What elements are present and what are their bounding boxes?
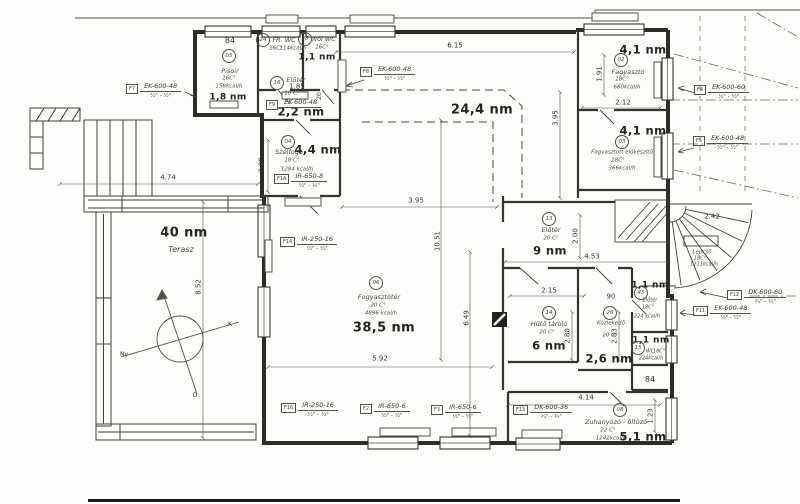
radiator-tag: F12 [727, 290, 742, 300]
dimension-lines [60, 52, 668, 438]
room-code-badge: 16 [270, 76, 284, 90]
radiator-size: ¾" - ¾" [755, 298, 776, 305]
radiator-label-f16: F16 IR-250-16½" - ½" [281, 401, 338, 418]
room-code-badge: 26 [603, 306, 617, 320]
radiator-label-f14: F14 IR-250-16½" - ½" [280, 235, 337, 252]
room-name: Előtér [643, 299, 658, 304]
radiator-label-f3: F3 IR-650-6½" - ½" [431, 403, 481, 420]
dim-4-14: 4.14 [578, 395, 594, 402]
dim-10-51: 10.51 [435, 231, 442, 251]
radiator-model: IR-650-6 [445, 403, 481, 413]
room-heat: 224 kcal/h [634, 315, 660, 320]
radiator-model: DK-600-36 [530, 403, 572, 413]
room-code-badge: 14 [542, 306, 556, 320]
room-heat: 4896 kcal/h [365, 311, 397, 317]
room-temp: 18 C° [284, 158, 299, 164]
radiator-size: ½" - ½" [718, 93, 739, 100]
radiator-model: DK-600-60 [744, 288, 786, 298]
dim-4-53: 4.53 [584, 254, 600, 261]
axis-lines [700, 16, 745, 194]
radiator-size: ½" - ¾" [299, 182, 320, 189]
radiator-model: EK-600-48 [710, 304, 751, 314]
radiator-label-f12: F12 DK-600-60¾" - ¾" [727, 288, 786, 305]
room-area: 9 nm [533, 245, 567, 257]
dim-6-49: 6.49 [464, 310, 471, 326]
dim-1-91: 1.91 [597, 66, 604, 82]
scan-edge-artifact [88, 499, 680, 502]
room-temp: 20 C° [543, 236, 558, 242]
radiator-label-f9: F9 EK-600-48 [266, 98, 321, 110]
room-area: 5,1 nm [620, 431, 667, 443]
radiator-tag: F5 [693, 136, 705, 146]
radiator-tag: F13 [513, 405, 528, 415]
compass-rose [121, 290, 239, 394]
room-name: Fagyasztó [611, 69, 644, 76]
dim-2-00-b: 2.00 [573, 228, 580, 244]
radiator-size: ¾" - ¾" [541, 413, 562, 420]
room-heat: 114kcal/h [280, 46, 307, 52]
radiator-tag: F4 [694, 85, 706, 95]
room-area: 38,5 nm [353, 322, 415, 335]
room-code-badge: 06 [369, 276, 383, 290]
radiator-size: ½" - ½" [452, 413, 473, 420]
floor-plan: 84 05 Pisoir 16C° 158kcal/h 1,8 nm 24 FR… [0, 0, 800, 504]
room-name: Szélfogó [275, 149, 303, 156]
room-temp: 20 C° [539, 330, 554, 336]
radiator-model: IR-650-6 [374, 402, 410, 412]
radiator-tag: F8 [360, 67, 372, 77]
radiator-model: EK-600-60 [708, 83, 749, 93]
roof-lines [75, 10, 800, 18]
room-area: 6 nm [532, 340, 566, 352]
radiator-size: ½" - ½" [150, 92, 171, 99]
dim-4-74: 4.74 [160, 175, 176, 182]
room-code-badge: 28 [298, 32, 312, 46]
dim-8-52: 8.52 [196, 279, 203, 295]
room-area: 1,8 nm [209, 94, 246, 103]
room-code-badge: 03 [615, 135, 629, 149]
stair-top-left [30, 108, 152, 196]
dim-1-85: 1.85 [289, 84, 305, 91]
dim-2-42: 2.42 [704, 214, 720, 221]
room-name: Női WC [312, 36, 336, 43]
radiator-model: EK-600-48 [140, 82, 181, 92]
radiator-label-f8: F8 EK-600-48½" - ½" [360, 65, 415, 82]
radiator-model: EK-600-48 [374, 65, 415, 75]
room-number: 84 [225, 37, 235, 45]
room-heat: 1211kcal/h [690, 263, 718, 268]
room-area: 4,1 nm [620, 125, 667, 137]
radiator-tag: F16 [281, 403, 296, 413]
compass-east-label: K [228, 322, 232, 328]
radiator-tag: F1A [274, 174, 289, 184]
dim-2-12: 2.12 [615, 100, 631, 107]
dim-2-15: 2.15 [541, 288, 557, 295]
radiator-tag: F3 [431, 405, 443, 415]
compass-south-label: D [193, 393, 198, 399]
radiator-tag: F11 [693, 306, 708, 316]
room-code-badge: 13 [542, 212, 556, 226]
room-code-badge: 05 [222, 49, 236, 63]
radiator-label-f7: F7 EK-600-48½" - ½" [126, 82, 181, 99]
dim-2-00-a: 2.00 [259, 157, 266, 173]
dim-90: 90 [607, 294, 616, 301]
room-temp: 16C° [315, 45, 329, 51]
room-temp: 18C° [642, 306, 654, 311]
radiator-label-f2: F2 IR-650-6½" - ½" [360, 402, 410, 419]
radiator-label-f4: F4 EK-600-60½" - ½" [694, 83, 749, 100]
room-code-badge: 24 [256, 33, 270, 47]
compass-west-label: Ny [120, 352, 128, 358]
radiator-model: IR-250-16 [298, 401, 338, 411]
room-heat: 660kcal/h [614, 85, 641, 91]
radiator-label-f1a: F1A IR-650-8½" - ¾" [274, 172, 327, 189]
room-code-badge: 15 [631, 341, 645, 355]
room-name: Fogyasztótér [358, 294, 400, 301]
room-code-badge: 08 [613, 403, 627, 417]
radiator-size: ½" - ½" [307, 245, 328, 252]
radiator-model: EK-600-48 [707, 134, 748, 144]
spiral-stair [615, 200, 752, 288]
room-name: Hűtő tároló [531, 321, 568, 328]
dim-1-23: 1.23 [648, 408, 655, 424]
room-name: FR. WC [272, 37, 295, 44]
room-temp: 18 C° [284, 91, 299, 97]
room-name: Közlekedő [597, 321, 625, 327]
radiator-size: ½" - ½" [381, 412, 402, 419]
dim-3-95-right: 3.95 [553, 110, 560, 126]
dim-2-83: 2.83 [612, 328, 619, 344]
room-area: 2,6 nm [586, 353, 633, 365]
room-code-badge: 02 [614, 53, 628, 67]
room-area: 1,1 nm [298, 54, 335, 63]
room-temp: 20 C° [370, 303, 385, 309]
radiator-tag: F9 [266, 100, 278, 110]
radiator-model: EK-600-48 [280, 98, 321, 108]
dim-3-95-mid: 3.95 [408, 198, 424, 205]
room-name: Fagyasztott előkészítő [591, 150, 653, 156]
radiator-tag: F2 [360, 404, 372, 414]
radiator-size: ½" - ½" [384, 75, 405, 82]
radiator-size: ½" - ½" [717, 144, 738, 151]
radiator-label-f13: F13 DK-600-36¾" - ¾" [513, 403, 572, 420]
room-name: Előtér [541, 227, 560, 234]
room-area: 4,1 nm [620, 44, 667, 56]
room-heat: 366kcal/h [609, 166, 636, 172]
room-name: Zuhanyozó - öltöző [585, 419, 647, 426]
room-area: 40 nm [160, 227, 207, 240]
room-heat: 158kcal/h [216, 84, 243, 90]
room-name: Pisoir [221, 68, 239, 75]
radiator-model: IR-250-16 [297, 235, 337, 245]
door-pivot-symbol [492, 312, 507, 327]
radiator-tag: F14 [280, 237, 295, 247]
room-temp: 18C° [611, 158, 625, 164]
room-temp: 18C° [615, 77, 629, 83]
radiator-size: ½" - ½" [308, 411, 329, 418]
dim-2-80: 2.80 [565, 328, 572, 344]
room-name: Terasz [168, 246, 193, 254]
room-number: 84 [645, 376, 655, 384]
radiator-size: ½" - ½" [720, 314, 741, 321]
dim-5-92: 5.92 [372, 356, 388, 363]
room-temp: 22 C° [600, 428, 615, 434]
dim-6-15: 6.15 [447, 43, 463, 50]
radiator-model: IR-650-8 [291, 172, 327, 182]
room-temp: 18C° [653, 350, 665, 355]
radiator-label-f11: F11 EK-600-48½" - ½" [693, 304, 751, 321]
room-heat: 224kcal/h [639, 357, 664, 362]
room-area: 24,4 nm [451, 104, 513, 117]
radiator-tag: F7 [126, 84, 138, 94]
room-temp: 16C° [222, 76, 236, 82]
radiator-label-f5: F5 EK-600-48½" - ½" [693, 134, 748, 151]
